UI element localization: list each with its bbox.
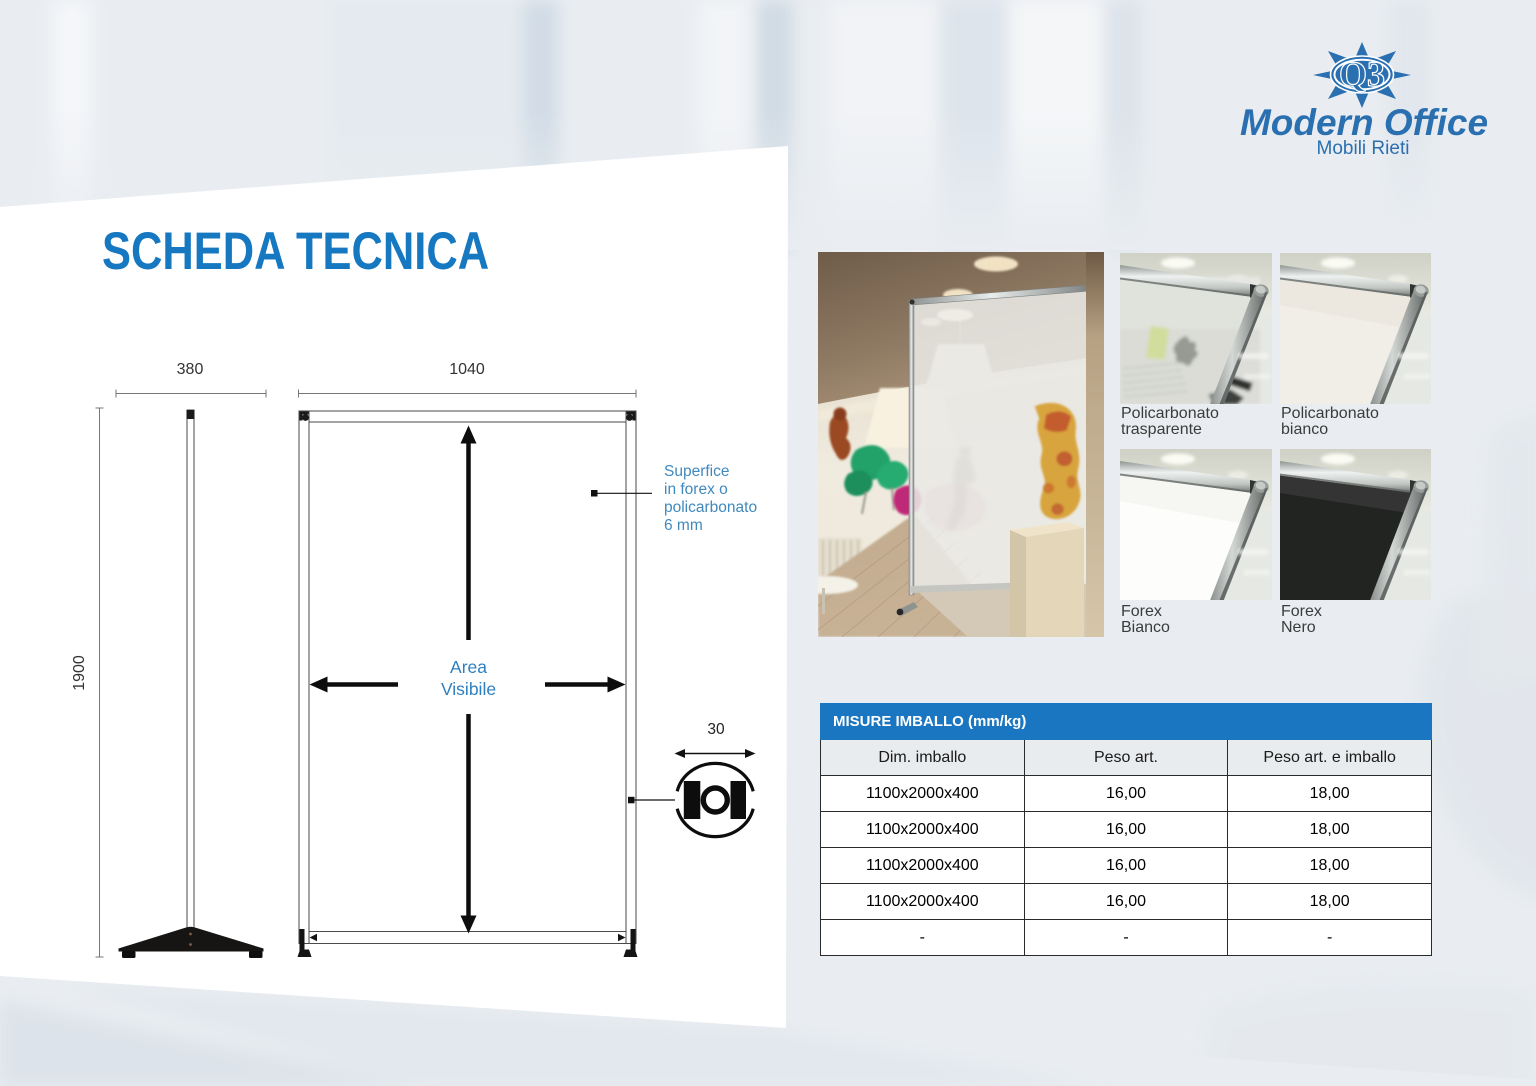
svg-text:1040: 1040 bbox=[449, 361, 485, 378]
svg-text:380: 380 bbox=[177, 361, 204, 378]
svg-text:policarbonato: policarbonato bbox=[664, 499, 757, 516]
svg-text:6 mm: 6 mm bbox=[664, 517, 703, 534]
svg-text:1900: 1900 bbox=[71, 655, 88, 691]
svg-text:30: 30 bbox=[707, 721, 725, 738]
svg-text:in forex o: in forex o bbox=[664, 481, 728, 498]
svg-text:Area: Area bbox=[450, 657, 487, 677]
svg-text:Visibile: Visibile bbox=[441, 679, 496, 699]
svg-text:Superfice: Superfice bbox=[664, 463, 729, 480]
